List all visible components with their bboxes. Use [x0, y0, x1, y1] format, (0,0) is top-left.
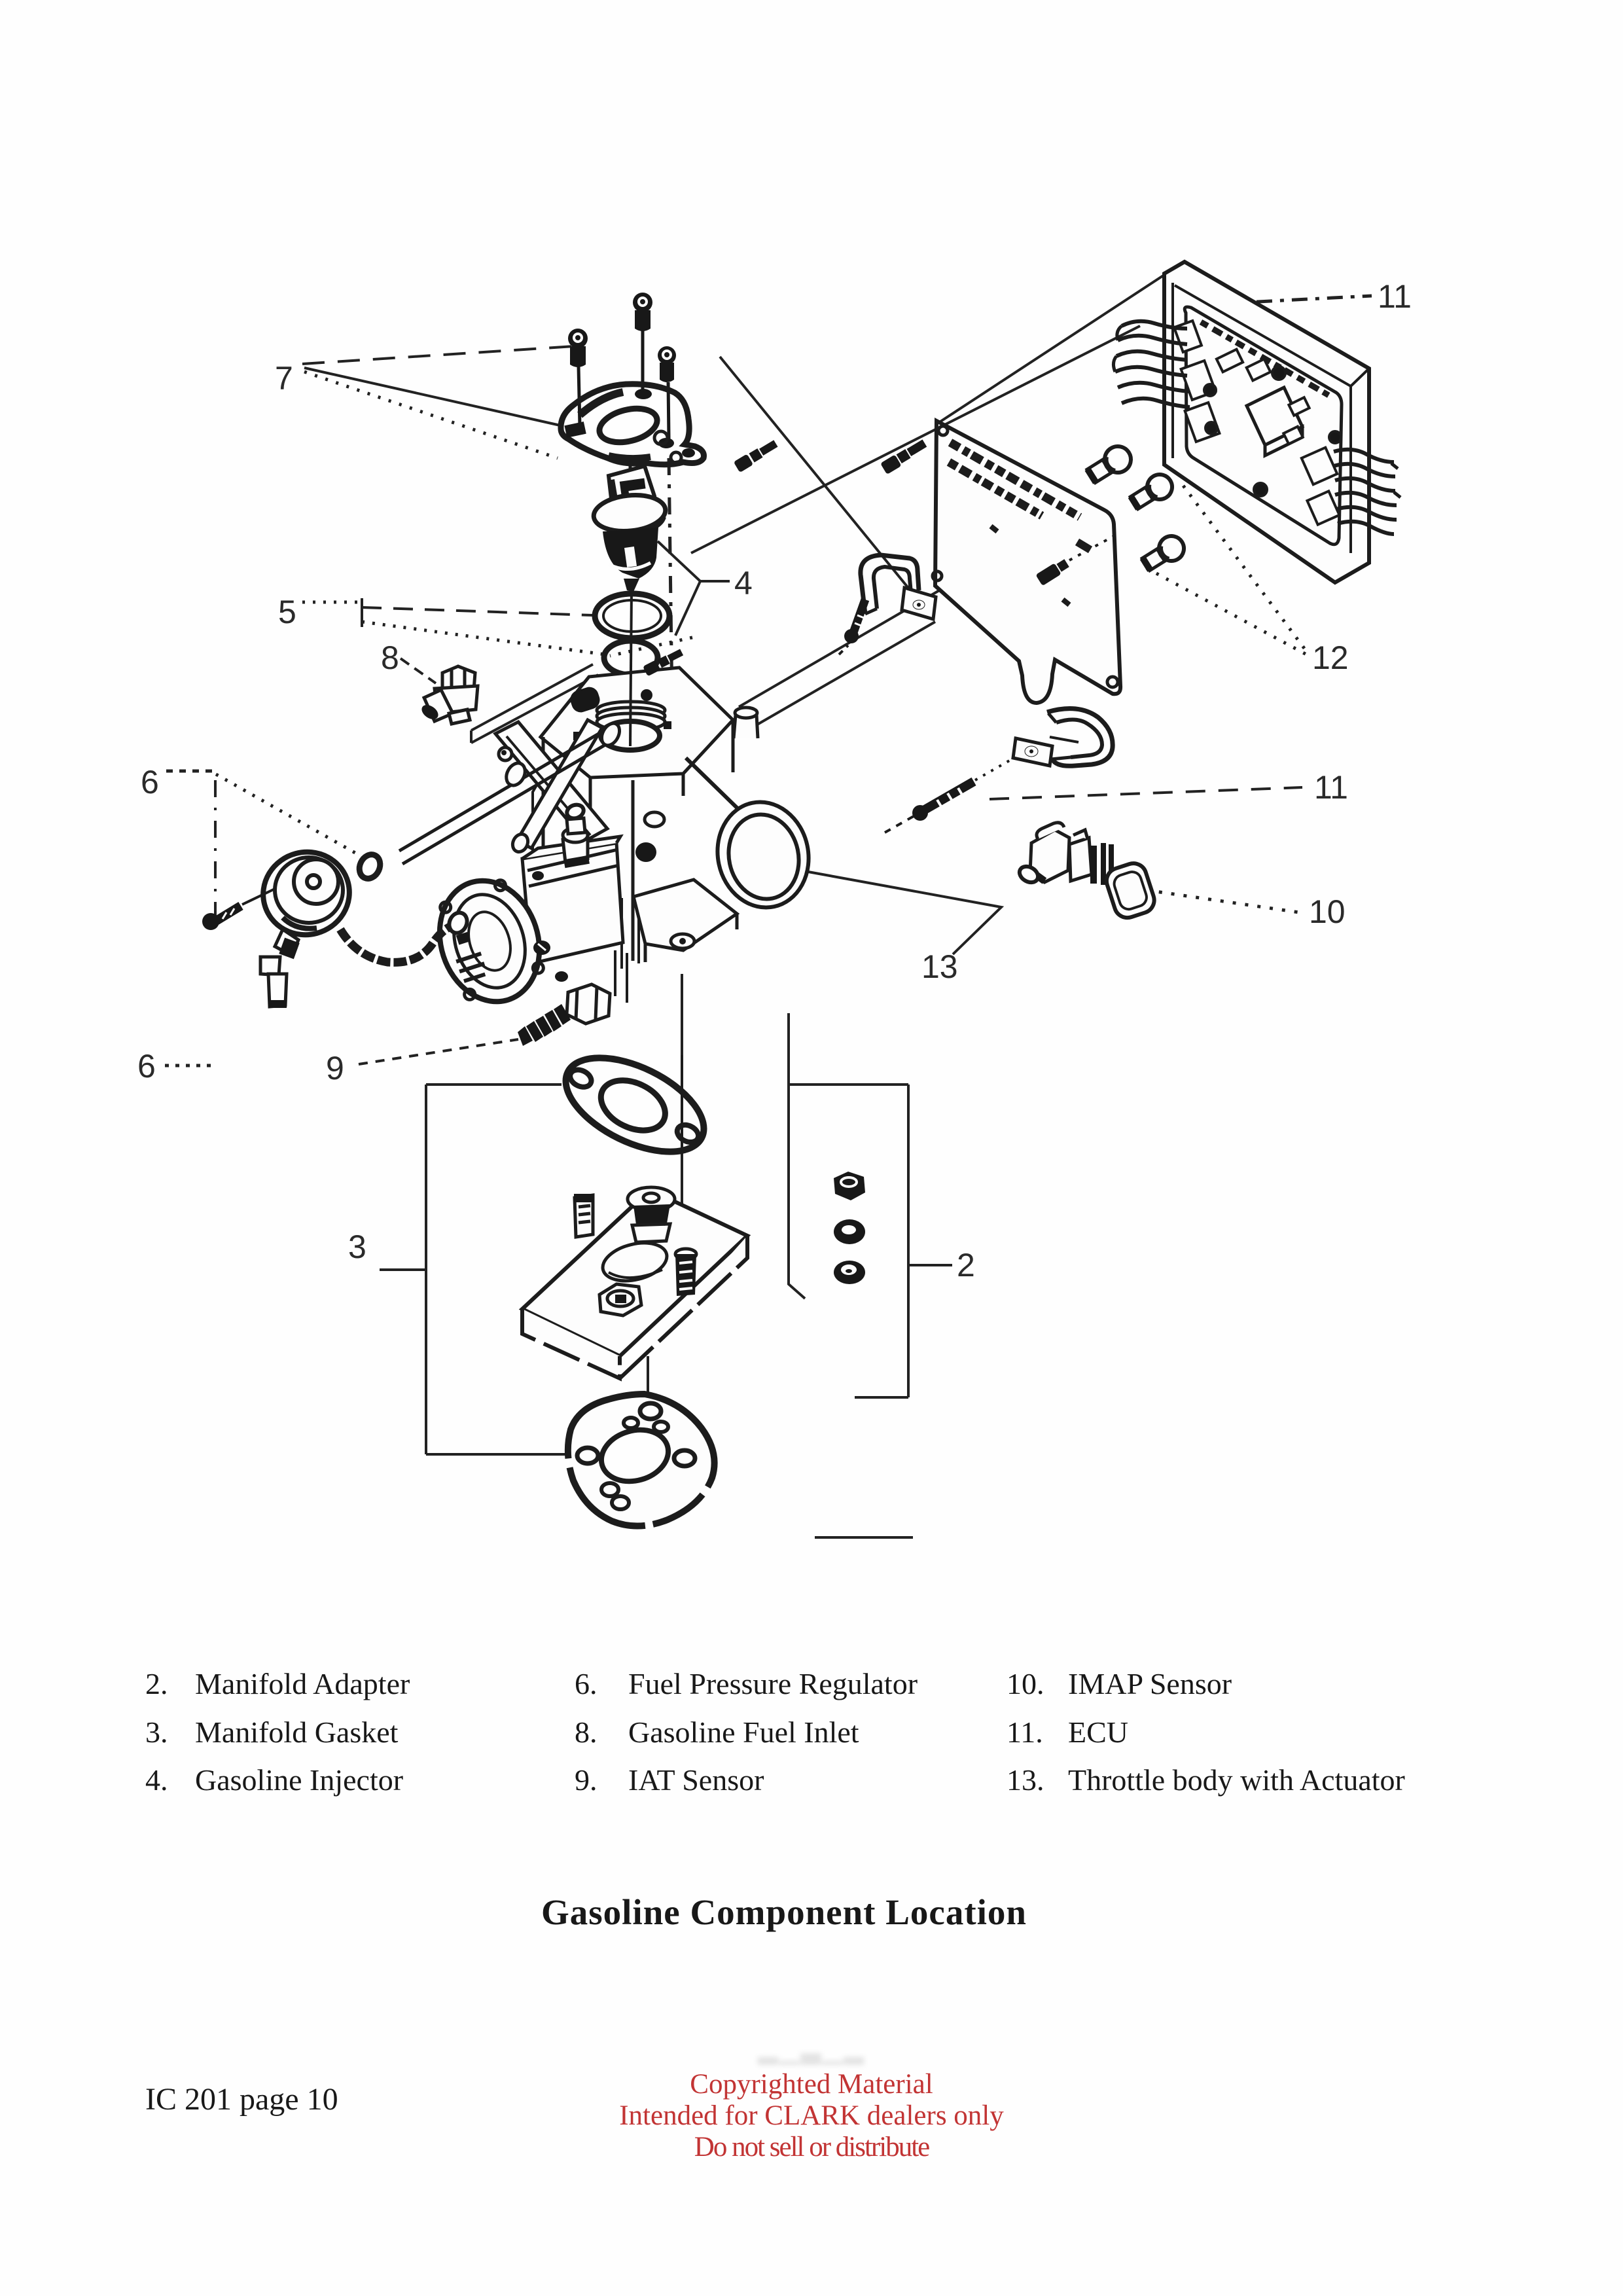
svg-text:5: 5 — [278, 594, 296, 630]
svg-text:6: 6 — [137, 1048, 156, 1085]
svg-text:2: 2 — [957, 1247, 975, 1283]
svg-text:7: 7 — [275, 360, 293, 397]
svg-text:11: 11 — [1314, 769, 1348, 806]
svg-text:8: 8 — [381, 639, 399, 676]
svg-text:6: 6 — [141, 764, 159, 800]
svg-text:9: 9 — [326, 1050, 344, 1086]
svg-text:11: 11 — [1378, 278, 1412, 315]
svg-text:10: 10 — [1309, 893, 1346, 930]
svg-text:4: 4 — [734, 565, 753, 601]
svg-text:12: 12 — [1312, 639, 1349, 676]
svg-text:13: 13 — [921, 948, 958, 985]
svg-text:3: 3 — [348, 1229, 366, 1265]
